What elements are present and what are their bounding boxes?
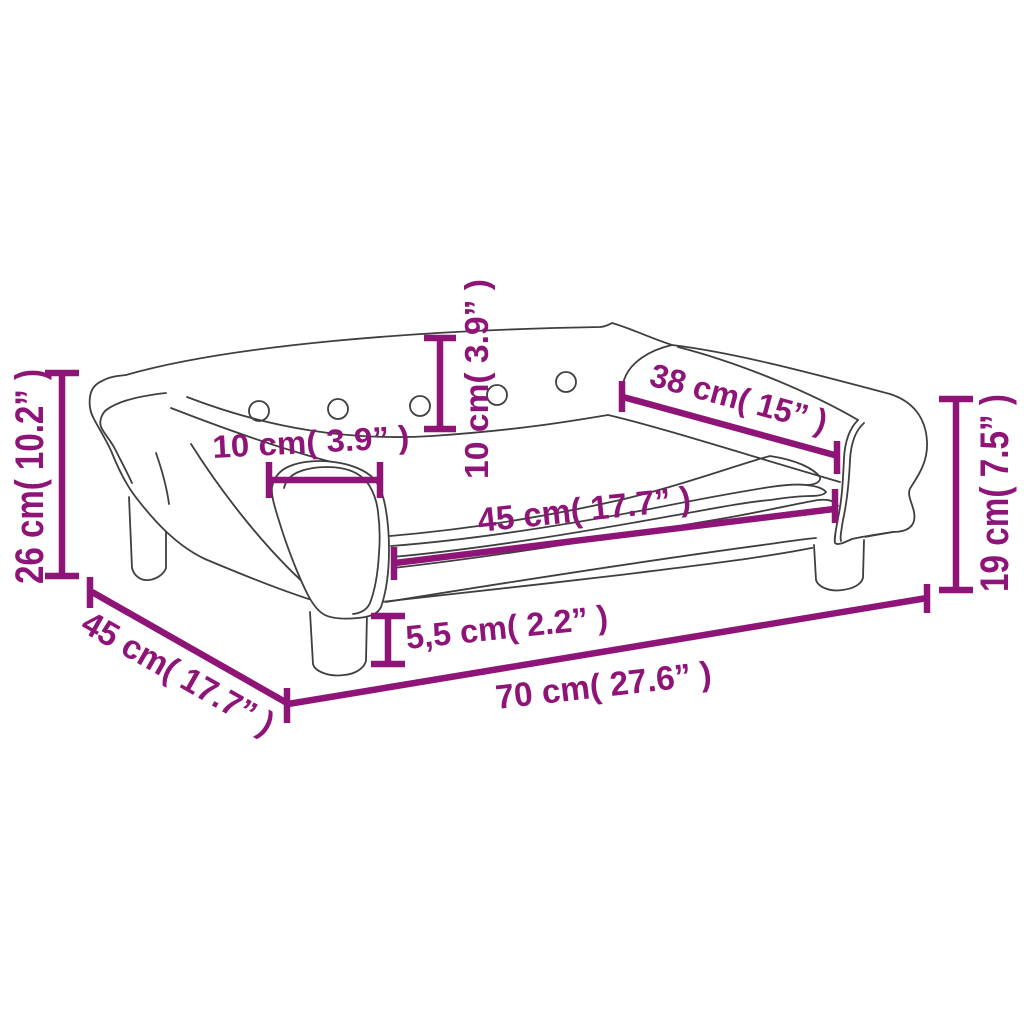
svg-text:10 cm( 3.9” ): 10 cm( 3.9” ) (458, 279, 495, 479)
svg-text:19 cm( 7.5” ): 19 cm( 7.5” ) (973, 394, 1017, 592)
svg-text:26 cm( 10.2” ): 26 cm( 10.2” ) (8, 369, 52, 584)
